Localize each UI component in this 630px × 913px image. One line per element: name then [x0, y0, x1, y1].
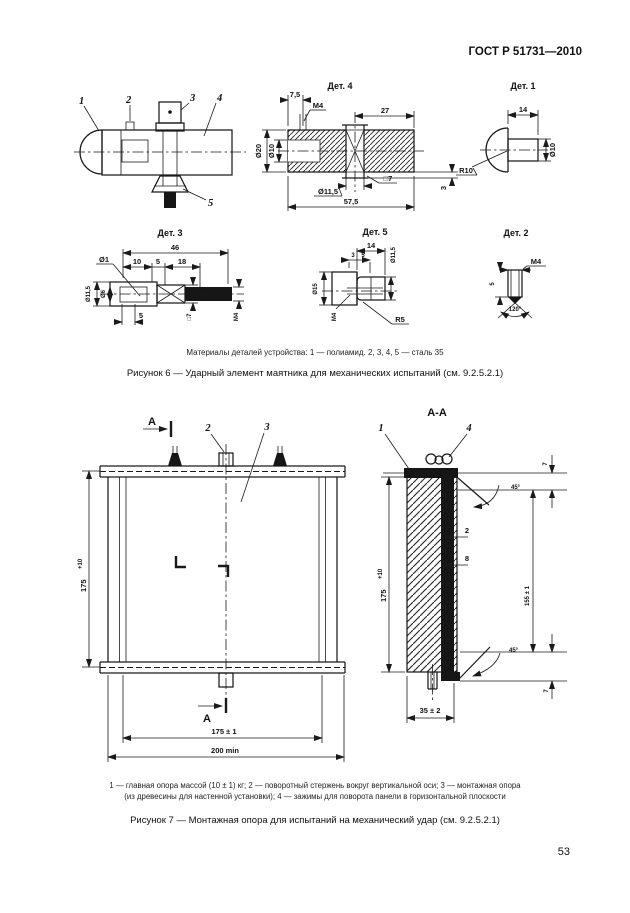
- detail-title: Дет. 2: [503, 228, 528, 238]
- dim: M4: [531, 257, 542, 266]
- part-label: 2: [204, 423, 211, 434]
- mounting-support-front-view: А А 2 3 175 +10 175 ± 1 200 min: [78, 416, 345, 762]
- detail-title: Дет. 5: [362, 227, 387, 237]
- figure7-legend-line2: (из древесины для настенной установки); …: [0, 791, 630, 802]
- dim: 46: [171, 243, 179, 252]
- dim: Ø6: [101, 289, 107, 298]
- detail-2-view: Дет. 2 M4 5 120°: [490, 228, 546, 318]
- page-number: 53: [558, 846, 570, 858]
- dim: R5: [395, 315, 405, 324]
- part-label: 1: [79, 96, 84, 107]
- mounting-support-section-view: А-А 45° 7 2 8 155 ± 1: [378, 407, 567, 723]
- section-mark: А: [203, 713, 211, 725]
- dim: 3: [351, 253, 355, 259]
- part-label: 3: [189, 93, 195, 104]
- section-mark: А: [148, 416, 156, 428]
- dim: 175: [79, 579, 88, 592]
- dim: □7: [384, 174, 393, 183]
- detail-4-view: Дет. 4 7,5 M4: [254, 81, 458, 211]
- dim: Ø11,5: [318, 187, 338, 196]
- figure7-legend: 1 — главная опора массой (10 ± 1) кг; 2 …: [0, 780, 630, 802]
- dim: 14: [367, 241, 376, 250]
- dim: 27: [381, 106, 389, 115]
- detail-title: Дет. 4: [327, 81, 352, 91]
- dim: 57,5: [344, 197, 359, 206]
- part-label: 2: [125, 95, 132, 106]
- dim-tolerance: +10: [378, 568, 384, 579]
- dim-tolerance: +10: [78, 558, 84, 569]
- part-label: 3: [263, 422, 269, 433]
- dim: 7,5: [290, 90, 300, 99]
- dim: 200 min: [211, 746, 239, 755]
- dim: □7: [187, 313, 193, 321]
- dim: M4: [332, 312, 338, 321]
- dim: 18: [178, 257, 186, 266]
- figure7-drawing: А А 2 3 175 +10 175 ± 1 200 min: [0, 400, 630, 772]
- dim: 175: [379, 589, 388, 602]
- dim: Ø20: [254, 144, 263, 158]
- dim: 5: [490, 282, 496, 286]
- dim: Ø10: [548, 143, 557, 157]
- detail-3-view: Дет. 3 Ø1 46 10 5 18: [86, 228, 244, 325]
- dim: 155 ± 1: [525, 585, 531, 606]
- dim: 45°: [509, 648, 519, 654]
- part-label: 5: [208, 198, 213, 209]
- dim: 8: [465, 554, 469, 563]
- dim: Ø1: [99, 255, 109, 264]
- dim: 175 ± 1: [212, 727, 237, 736]
- dim: 2: [465, 526, 469, 535]
- dim: 7: [544, 689, 550, 693]
- part-label: 4: [465, 423, 471, 434]
- dim: R10: [459, 166, 473, 175]
- figure6-caption: Рисунок 6 — Ударный элемент маятника для…: [0, 368, 630, 379]
- assembly-view: 1 2 3 4 5: [74, 93, 246, 209]
- figure7-caption: Рисунок 7 — Монтажная опора для испытани…: [0, 815, 630, 826]
- detail-5-view: Дет. 5 14 3 5 Ø11,5 Ø15: [313, 227, 409, 324]
- standard-header: ГОСТ Р 51731—2010: [469, 46, 582, 58]
- dim: 120°: [509, 307, 522, 313]
- detail-title: Дет. 3: [157, 228, 182, 238]
- part-label: 4: [216, 93, 222, 104]
- detail-1-view: Дет. 1 14 R10 Ø10: [456, 81, 557, 175]
- dim: Ø10: [267, 144, 276, 158]
- dim: Ø15: [313, 283, 319, 295]
- dim: 14: [519, 105, 528, 114]
- dim: Ø11,5: [391, 246, 397, 263]
- dim: 5: [361, 253, 365, 259]
- dim: Ø11,5: [86, 285, 92, 302]
- detail-title: Дет. 1: [510, 81, 535, 91]
- dim: 45°: [511, 485, 521, 491]
- dim: 35 ± 2: [420, 706, 441, 715]
- figure6-drawing: 1 2 3 4 5 Дет. 4: [0, 70, 630, 345]
- dim: 7: [543, 462, 549, 466]
- dim: 5: [156, 257, 160, 266]
- dim: 5: [139, 311, 143, 320]
- dim: 3: [439, 186, 448, 190]
- figure7-legend-line1: 1 — главная опора массой (10 ± 1) кг; 2 …: [0, 780, 630, 791]
- section-title: А-А: [427, 407, 447, 419]
- figure6-materials-note: Материалы деталей устройства: 1 — полиам…: [0, 348, 630, 357]
- dim: M4: [313, 101, 324, 110]
- part-label: 1: [378, 423, 383, 434]
- dim: M4: [234, 312, 240, 321]
- document-page: ГОСТ Р 51731—2010: [0, 0, 630, 913]
- dim: 10: [133, 257, 141, 266]
